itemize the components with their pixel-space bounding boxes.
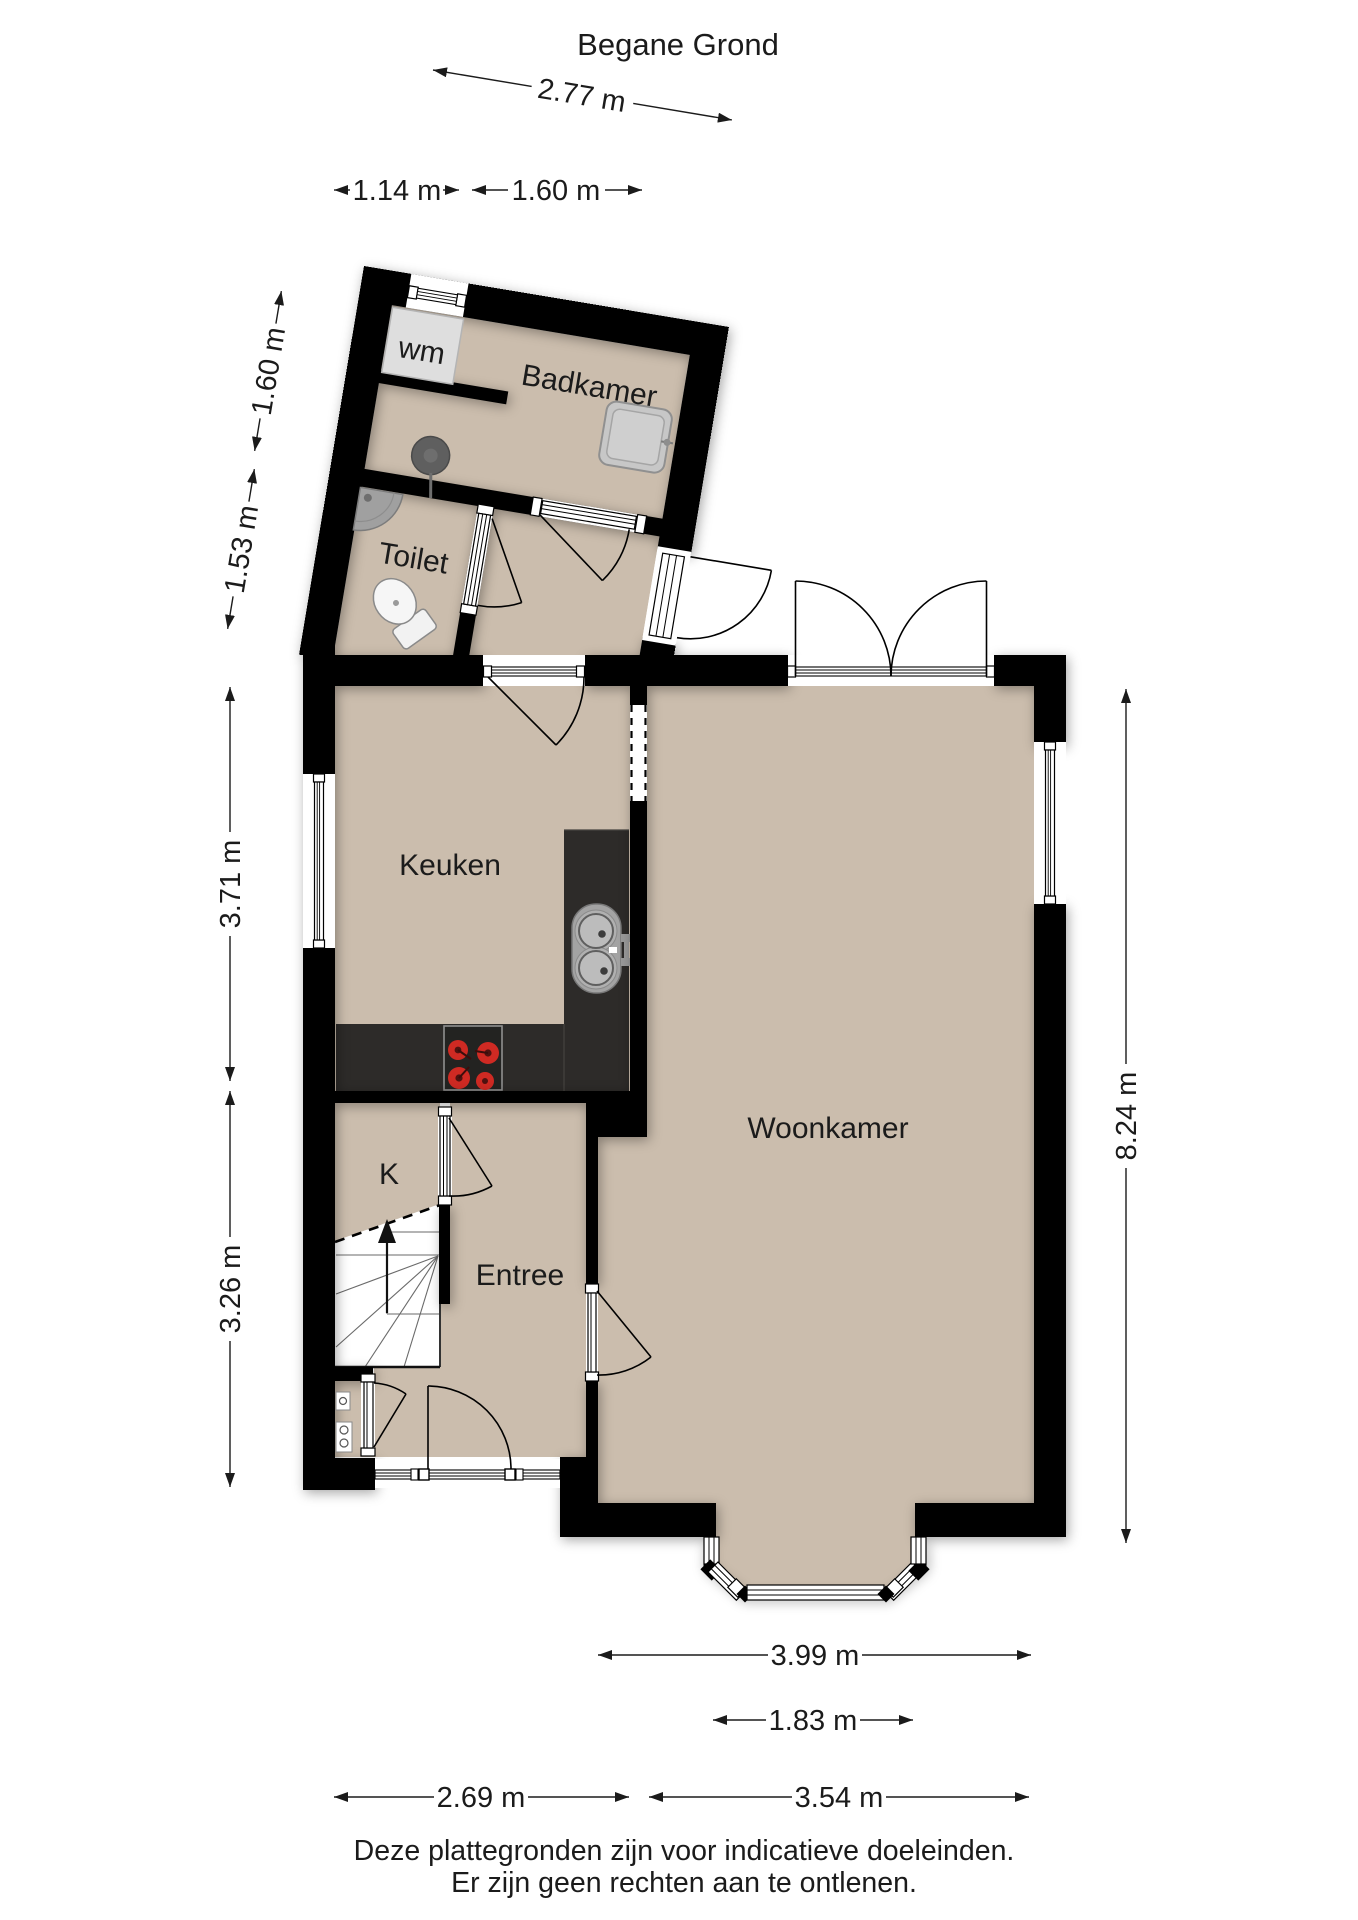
svg-text:8.24 m: 8.24 m [1111, 1072, 1143, 1161]
svg-text:3.26 m: 3.26 m [215, 1245, 247, 1334]
svg-text:3.71 m: 3.71 m [215, 840, 247, 929]
svg-text:Keuken: Keuken [399, 849, 501, 882]
svg-text:3.99 m: 3.99 m [771, 1640, 860, 1672]
svg-text:1.60 m: 1.60 m [512, 175, 601, 207]
svg-text:2.69 m: 2.69 m [437, 1782, 526, 1814]
svg-text:Er zijn geen rechten aan te on: Er zijn geen rechten aan te ontlenen. [451, 1867, 917, 1899]
svg-text:Woonkamer: Woonkamer [747, 1112, 908, 1145]
svg-text:1.83 m: 1.83 m [769, 1705, 858, 1737]
svg-text:K: K [379, 1158, 399, 1191]
svg-text:Begane Grond: Begane Grond [577, 27, 779, 62]
svg-text:Deze plattegronden zijn voor i: Deze plattegronden zijn voor indicatieve… [354, 1835, 1015, 1867]
svg-text:3.54 m: 3.54 m [795, 1782, 884, 1814]
svg-text:Entree: Entree [476, 1259, 564, 1292]
svg-text:1.14 m: 1.14 m [353, 175, 442, 207]
